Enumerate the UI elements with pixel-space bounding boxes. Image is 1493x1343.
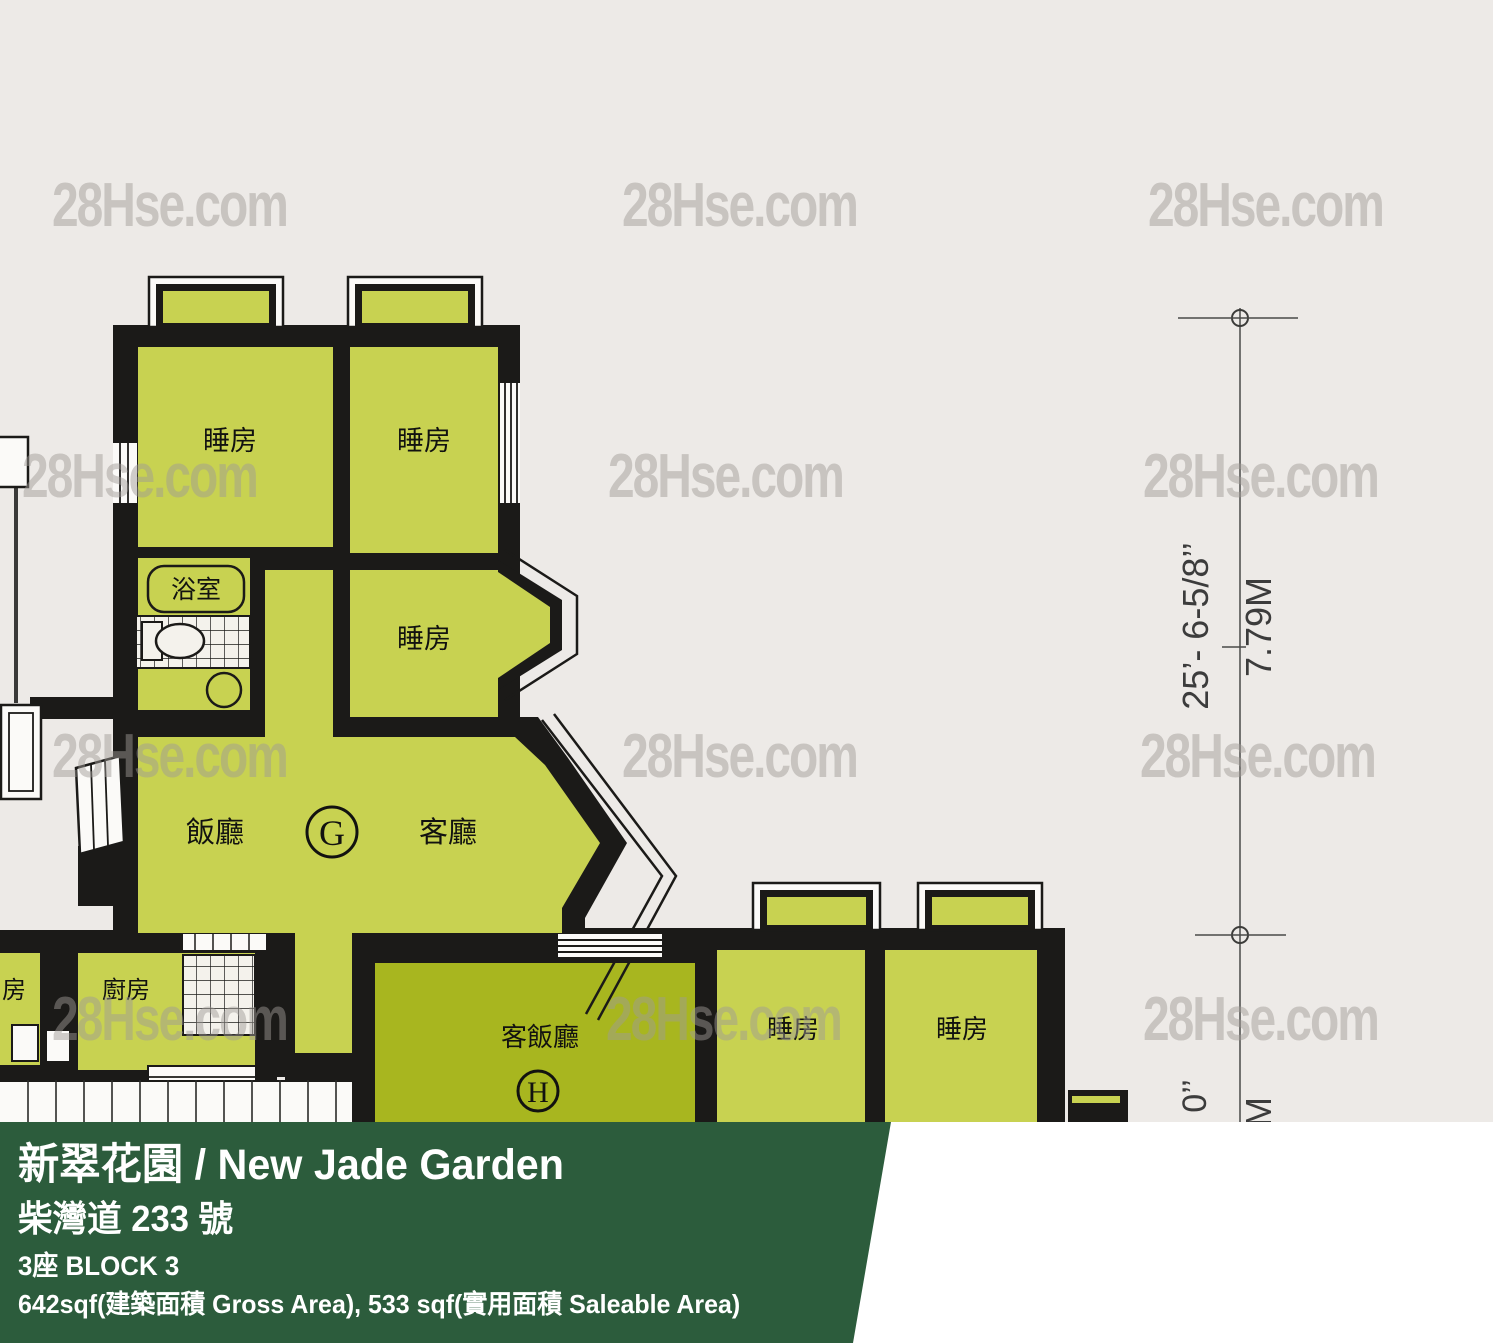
- bedroom1-label: 睡房: [203, 426, 257, 456]
- corridor: [0, 1080, 352, 1122]
- info-banner: 新翠花園 / New Jade Garden 柴灣道 233 號 3座 BLOC…: [0, 1122, 1493, 1343]
- dimension-line: 25’- 6-5/8’’ 7.79M 0’’ M: [1175, 308, 1298, 1122]
- kitchen-label: 廚房: [102, 977, 150, 1004]
- bedroom3-label: 睡房: [397, 624, 451, 654]
- info-banner-green-panel: 新翠花園 / New Jade Garden 柴灣道 233 號 3座 BLOC…: [0, 1122, 910, 1343]
- floor-plan: 睡房 睡房 睡房 浴室 飯廳 客廳 廚房 房 客飯廳 睡房 睡房 G H: [0, 0, 1493, 1122]
- living-room-label: 客廳: [419, 816, 477, 849]
- wall-fragment-stripe: [1072, 1096, 1120, 1103]
- estate-title: 新翠花園 / New Jade Garden: [18, 1130, 564, 1192]
- unit-g-letter: G: [319, 813, 345, 853]
- bedroom-a-label: 睡房: [767, 1015, 819, 1044]
- left-window-fragments: [0, 437, 124, 854]
- estate-area: 642sqf(建築面積 Gross Area), 533 sqf(實用面積 Sa…: [18, 1284, 740, 1321]
- bay-window-bedroom3: [498, 550, 577, 700]
- unit-h-letter: H: [527, 1076, 549, 1109]
- bathroom-label: 浴室: [171, 576, 221, 604]
- partial-room-label: 房: [2, 977, 26, 1004]
- page: 睡房 睡房 睡房 浴室 飯廳 客廳 廚房 房 客飯廳 睡房 睡房 G H: [0, 0, 1493, 1343]
- bedroom-b-label: 睡房: [936, 1015, 988, 1044]
- estate-address: 柴灣道 233 號: [18, 1190, 233, 1242]
- dimension-metric: 7.79M: [1238, 577, 1279, 677]
- kitchen-tiles: [183, 955, 255, 1035]
- dining-room-label: 飯廳: [186, 816, 244, 849]
- dimension-imperial-partial: 0’’: [1176, 1079, 1214, 1112]
- living-dining-label: 客飯廳: [501, 1023, 579, 1052]
- dimension-imperial: 25’- 6-5/8’’: [1175, 542, 1216, 709]
- bedroom2-label: 睡房: [397, 426, 451, 456]
- dimension-metric-partial: M: [1238, 1097, 1279, 1122]
- estate-block: 3座 BLOCK 3: [18, 1244, 179, 1283]
